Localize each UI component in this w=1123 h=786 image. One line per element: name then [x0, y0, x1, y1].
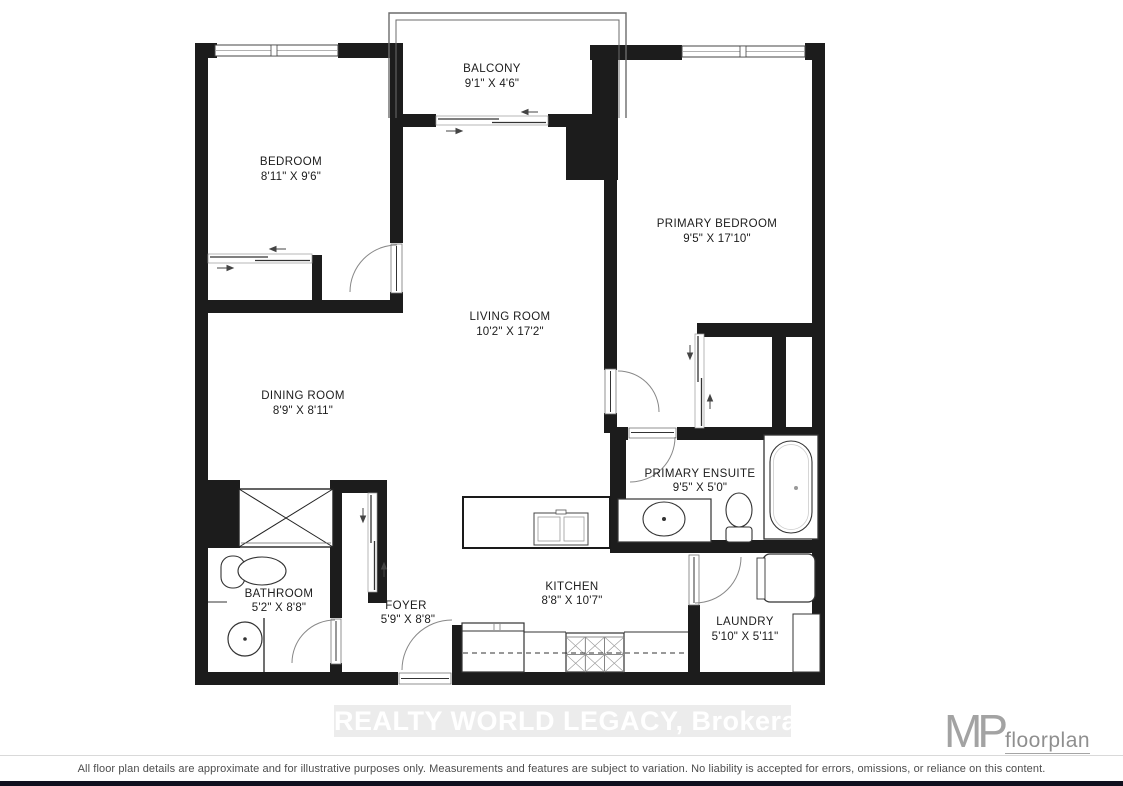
- primary-closet-sliding-door: [695, 334, 704, 428]
- room-label-bedroom: BEDROOM: [260, 156, 322, 168]
- bathtub: [764, 435, 818, 539]
- bathroom-door: [292, 619, 341, 664]
- foyer-closet-door: [368, 493, 377, 592]
- room-label-living-room: LIVING ROOM: [469, 311, 550, 323]
- footer-divider: [0, 755, 1123, 756]
- room-dims-bathroom: 5'2" X 8'8": [252, 602, 306, 614]
- disclaimer-text: All floor plan details are approximate a…: [0, 763, 1123, 775]
- toilet: [228, 622, 262, 656]
- room-label-kitchen: KITCHEN: [545, 581, 598, 593]
- room-dims-dining-room: 8'9" X 8'11": [273, 405, 333, 417]
- bottom-edge-bar: [0, 781, 1123, 786]
- room-dims-balcony: 9'1" X 4'6": [465, 78, 519, 90]
- shower: [239, 489, 333, 547]
- ensuite-vanity: [618, 499, 711, 542]
- ensuite-toilet: [726, 493, 752, 542]
- room-label-primary-ensuite: PRIMARY ENSUITE: [644, 468, 755, 480]
- bedroom-door: [350, 244, 402, 293]
- laundry-counter: [793, 614, 820, 672]
- room-dims-primary-bedroom: 9'5" X 17'10": [683, 233, 751, 245]
- kitchen-island: [463, 497, 610, 548]
- room-label-bathroom: BATHROOM: [245, 588, 314, 600]
- laundry-fixtures: [757, 554, 820, 672]
- room-label-foyer: FOYER: [385, 600, 427, 612]
- room-dims-foyer: 5'9" X 8'8": [381, 614, 435, 626]
- windows: [215, 45, 805, 57]
- floorplan-page: BALCONY 9'1" X 4'6" BEDROOM 8'11" X 9'6"…: [0, 0, 1123, 786]
- washer: [757, 554, 815, 602]
- brokerage-watermark: REALTY WORLD LEGACY, Brokerage: [334, 705, 791, 737]
- mp-floorplan-logo: MP floorplan: [944, 704, 1090, 758]
- floorplan-drawing: BALCONY 9'1" X 4'6" BEDROOM 8'11" X 9'6"…: [0, 0, 1123, 786]
- room-label-dining-room: DINING ROOM: [261, 390, 345, 402]
- room-label-primary-bedroom: PRIMARY BEDROOM: [657, 218, 778, 230]
- faucet-icon: [556, 510, 566, 514]
- room-dims-primary-ensuite: 9'5" X 5'0": [673, 482, 727, 494]
- logo-mp-monogram: MP: [944, 704, 1003, 758]
- room-dims-laundry: 5'10" X 5'11": [712, 631, 779, 643]
- room-dims-kitchen: 8'8" X 10'7": [542, 595, 603, 607]
- primary-bedroom-door: [605, 369, 659, 414]
- fridge: [462, 623, 524, 672]
- primary-bedroom-window: [682, 46, 805, 57]
- entry-door: [399, 620, 452, 684]
- room-label-balcony: BALCONY: [463, 63, 521, 75]
- room-dims-living-room: 10'2" X 17'2": [476, 326, 544, 338]
- bedroom-window: [215, 45, 338, 56]
- laundry-door: [689, 555, 741, 605]
- bedroom-closet-sliding-door: [208, 254, 312, 263]
- balcony-sliding-door: [436, 116, 548, 125]
- logo-floorplan-text: floorplan: [1005, 729, 1090, 754]
- room-label-laundry: LAUNDRY: [716, 616, 774, 628]
- pedestal-sink: [221, 556, 286, 588]
- room-dims-bedroom: 8'11" X 9'6": [261, 171, 321, 183]
